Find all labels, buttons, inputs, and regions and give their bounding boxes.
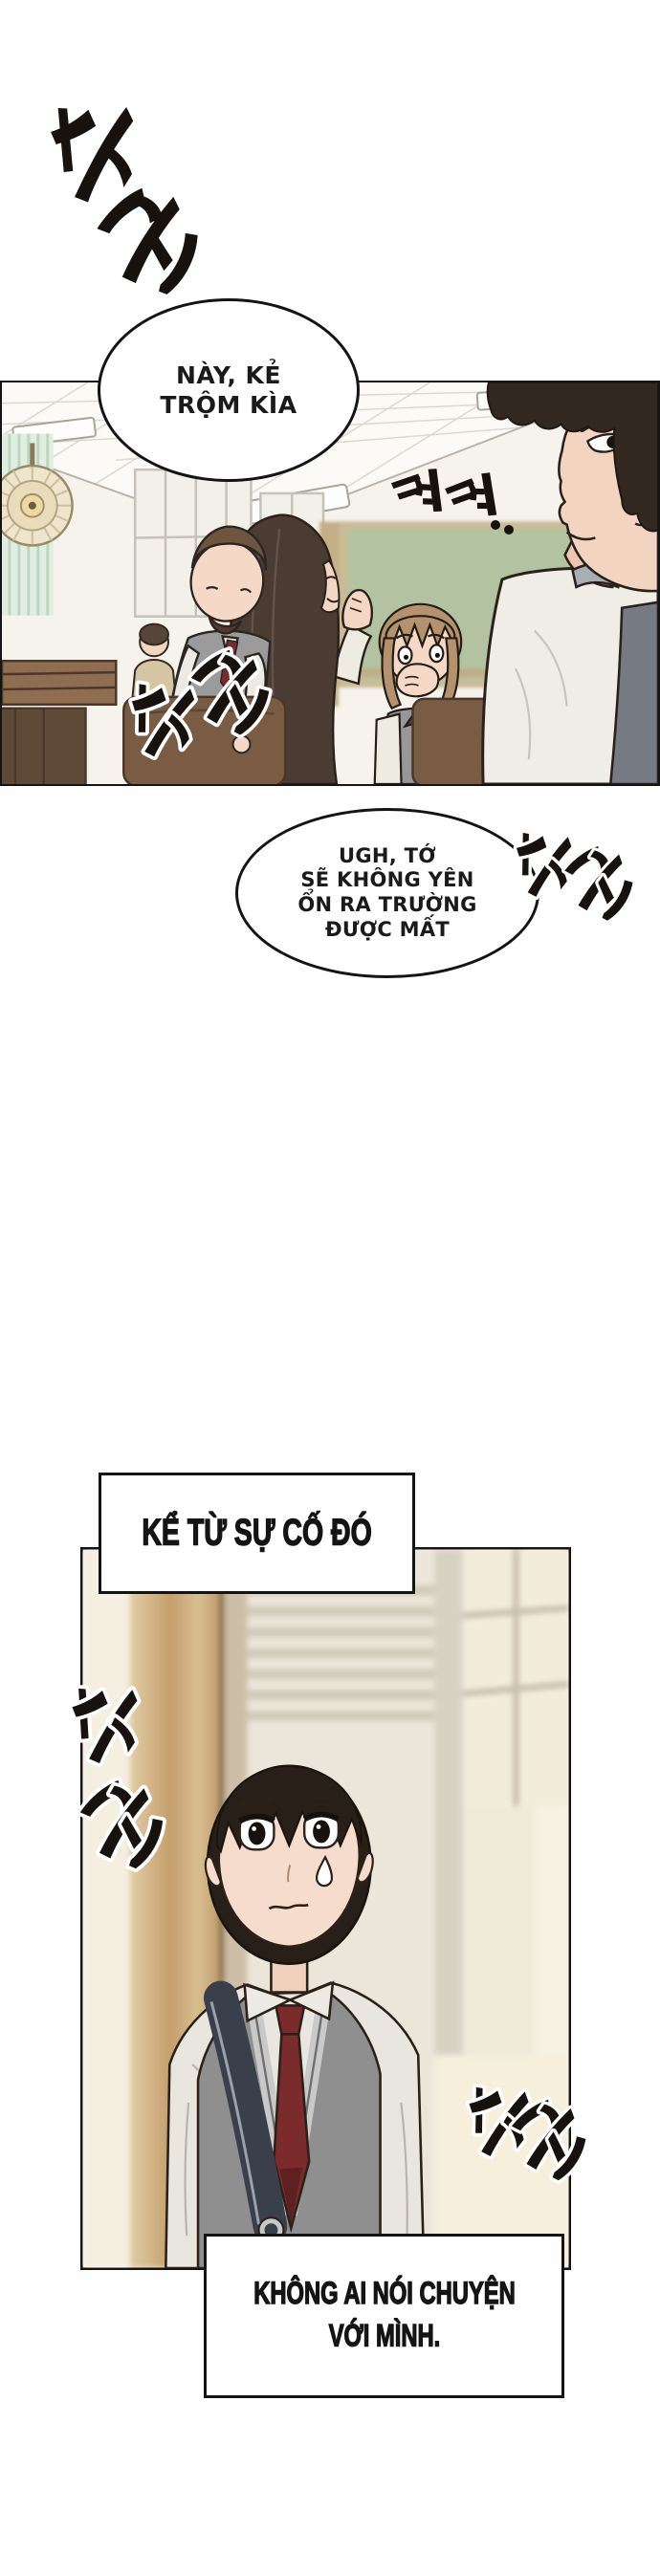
bubble2-line2: SẼ KHÔNG YÊN xyxy=(300,868,473,893)
bubble2-line4: ĐƯỢC MẤT xyxy=(325,918,450,943)
bubble1-line1: NÀY, KẺ xyxy=(176,360,281,390)
bubble2-line1: UGH, TỚ xyxy=(339,844,436,869)
boy-scene xyxy=(82,1549,569,2268)
bubble2-line3: ỔN RA TRƯỜNG xyxy=(297,893,476,918)
caption1-text: KỂ TỪ SỰ CỐ ĐÓ xyxy=(142,1512,371,1554)
speech-bubble-thief: NÀY, KẺ TRỘM KÌA xyxy=(98,298,360,482)
comic-page: NÀY, KẺ TRỘM KÌA UGH, TỚ SẼ KHÔNG YÊN ỔN… xyxy=(0,0,660,2576)
speech-bubble-ugh: UGH, TỚ SẼ KHÔNG YÊN ỔN RA TRƯỜNG ĐƯỢC M… xyxy=(235,808,539,978)
caption-no-one-talks: KHÔNG AI NÓI CHUYỆN VỚI MÌNH. xyxy=(204,2234,564,2398)
sfx-whisper-top xyxy=(23,74,219,309)
caption2-line2: VỚI MÌNH. xyxy=(253,2316,516,2358)
caption-since-incident: KỂ TỪ SỰ CỐ ĐÓ xyxy=(99,1473,415,1594)
caption2-line1: KHÔNG AI NÓI CHUYỆN xyxy=(253,2274,516,2316)
bubble1-line2: TRỘM KÌA xyxy=(160,390,297,420)
panel-boy-alone xyxy=(80,1547,571,2270)
